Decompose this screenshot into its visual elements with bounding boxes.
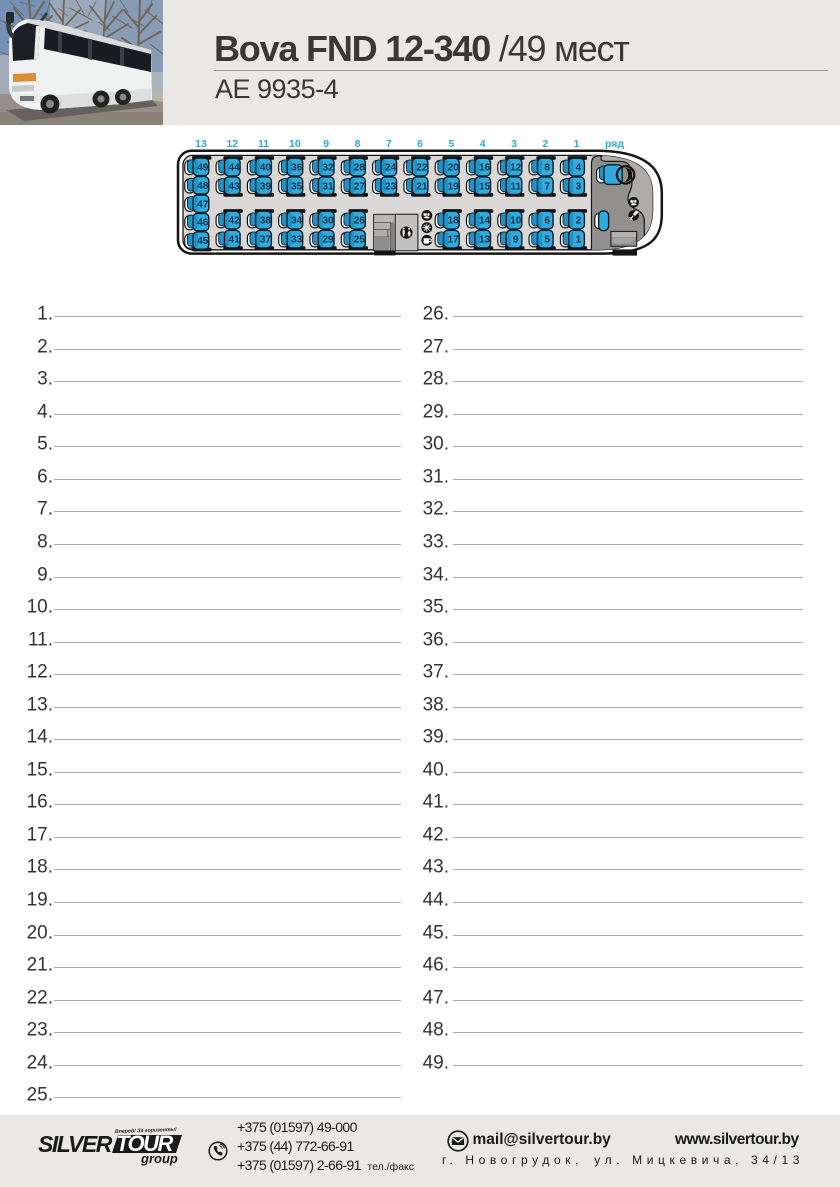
svg-text:29: 29 [322,235,334,246]
svg-text:12: 12 [226,138,238,150]
svg-text:22: 22 [416,163,428,174]
svg-text:3: 3 [511,138,517,150]
svg-text:28: 28 [354,163,366,174]
svg-text:21: 21 [416,181,428,192]
svg-text:10: 10 [289,138,301,150]
svg-text:48: 48 [197,181,209,192]
svg-text:1: 1 [576,235,582,246]
svg-text:14: 14 [479,216,491,227]
svg-text:23: 23 [385,181,397,192]
svg-text:19: 19 [448,181,460,192]
svg-text:38: 38 [260,216,272,227]
svg-text:13: 13 [479,235,491,246]
svg-text:46: 46 [197,218,209,229]
svg-text:18: 18 [448,216,460,227]
svg-text:8: 8 [355,138,361,150]
svg-text:31: 31 [322,181,334,192]
svg-text:15: 15 [479,181,491,192]
svg-text:35: 35 [291,181,303,192]
svg-text:20: 20 [448,163,460,174]
svg-text:16: 16 [479,163,491,174]
svg-text:45: 45 [197,236,209,247]
svg-text:group: group [140,1151,178,1166]
svg-text:43: 43 [229,181,241,192]
svg-text:44: 44 [229,163,241,174]
svg-text:5: 5 [544,235,550,246]
svg-text:36: 36 [291,163,303,174]
svg-text:12: 12 [510,163,522,174]
svg-text:9: 9 [513,235,519,246]
svg-text:24: 24 [385,163,397,174]
svg-text:3: 3 [576,181,582,192]
svg-text:5: 5 [448,138,454,150]
svg-text:2: 2 [542,138,548,150]
svg-text:11: 11 [511,181,522,192]
svg-text:30: 30 [322,216,334,227]
svg-text:42: 42 [229,216,241,227]
svg-text:49: 49 [197,163,209,174]
svg-text:6: 6 [544,216,550,227]
svg-text:34: 34 [291,216,303,227]
svg-text:41: 41 [229,235,241,246]
svg-text:2: 2 [576,216,582,227]
svg-text:17: 17 [448,235,460,246]
svg-text:ряд: ряд [605,138,624,150]
svg-text:7: 7 [386,138,392,150]
svg-text:32: 32 [322,163,334,174]
svg-text:4: 4 [480,138,486,150]
svg-text:10: 10 [510,216,522,227]
svg-text:47: 47 [197,199,209,210]
svg-text:4: 4 [576,163,582,174]
svg-text:37: 37 [260,235,272,246]
svg-text:11: 11 [258,138,269,150]
svg-text:1: 1 [574,138,580,150]
svg-text:7: 7 [544,181,550,192]
svg-text:39: 39 [260,181,272,192]
svg-text:26: 26 [354,216,366,227]
svg-text:33: 33 [291,235,303,246]
svg-text:8: 8 [544,163,550,174]
svg-text:25: 25 [354,235,366,246]
svg-text:40: 40 [260,163,272,174]
svg-text:13: 13 [195,138,207,150]
svg-text:27: 27 [354,181,366,192]
svg-text:SILVER: SILVER [38,1131,113,1157]
svg-text:6: 6 [417,138,423,150]
svg-text:9: 9 [323,138,329,150]
